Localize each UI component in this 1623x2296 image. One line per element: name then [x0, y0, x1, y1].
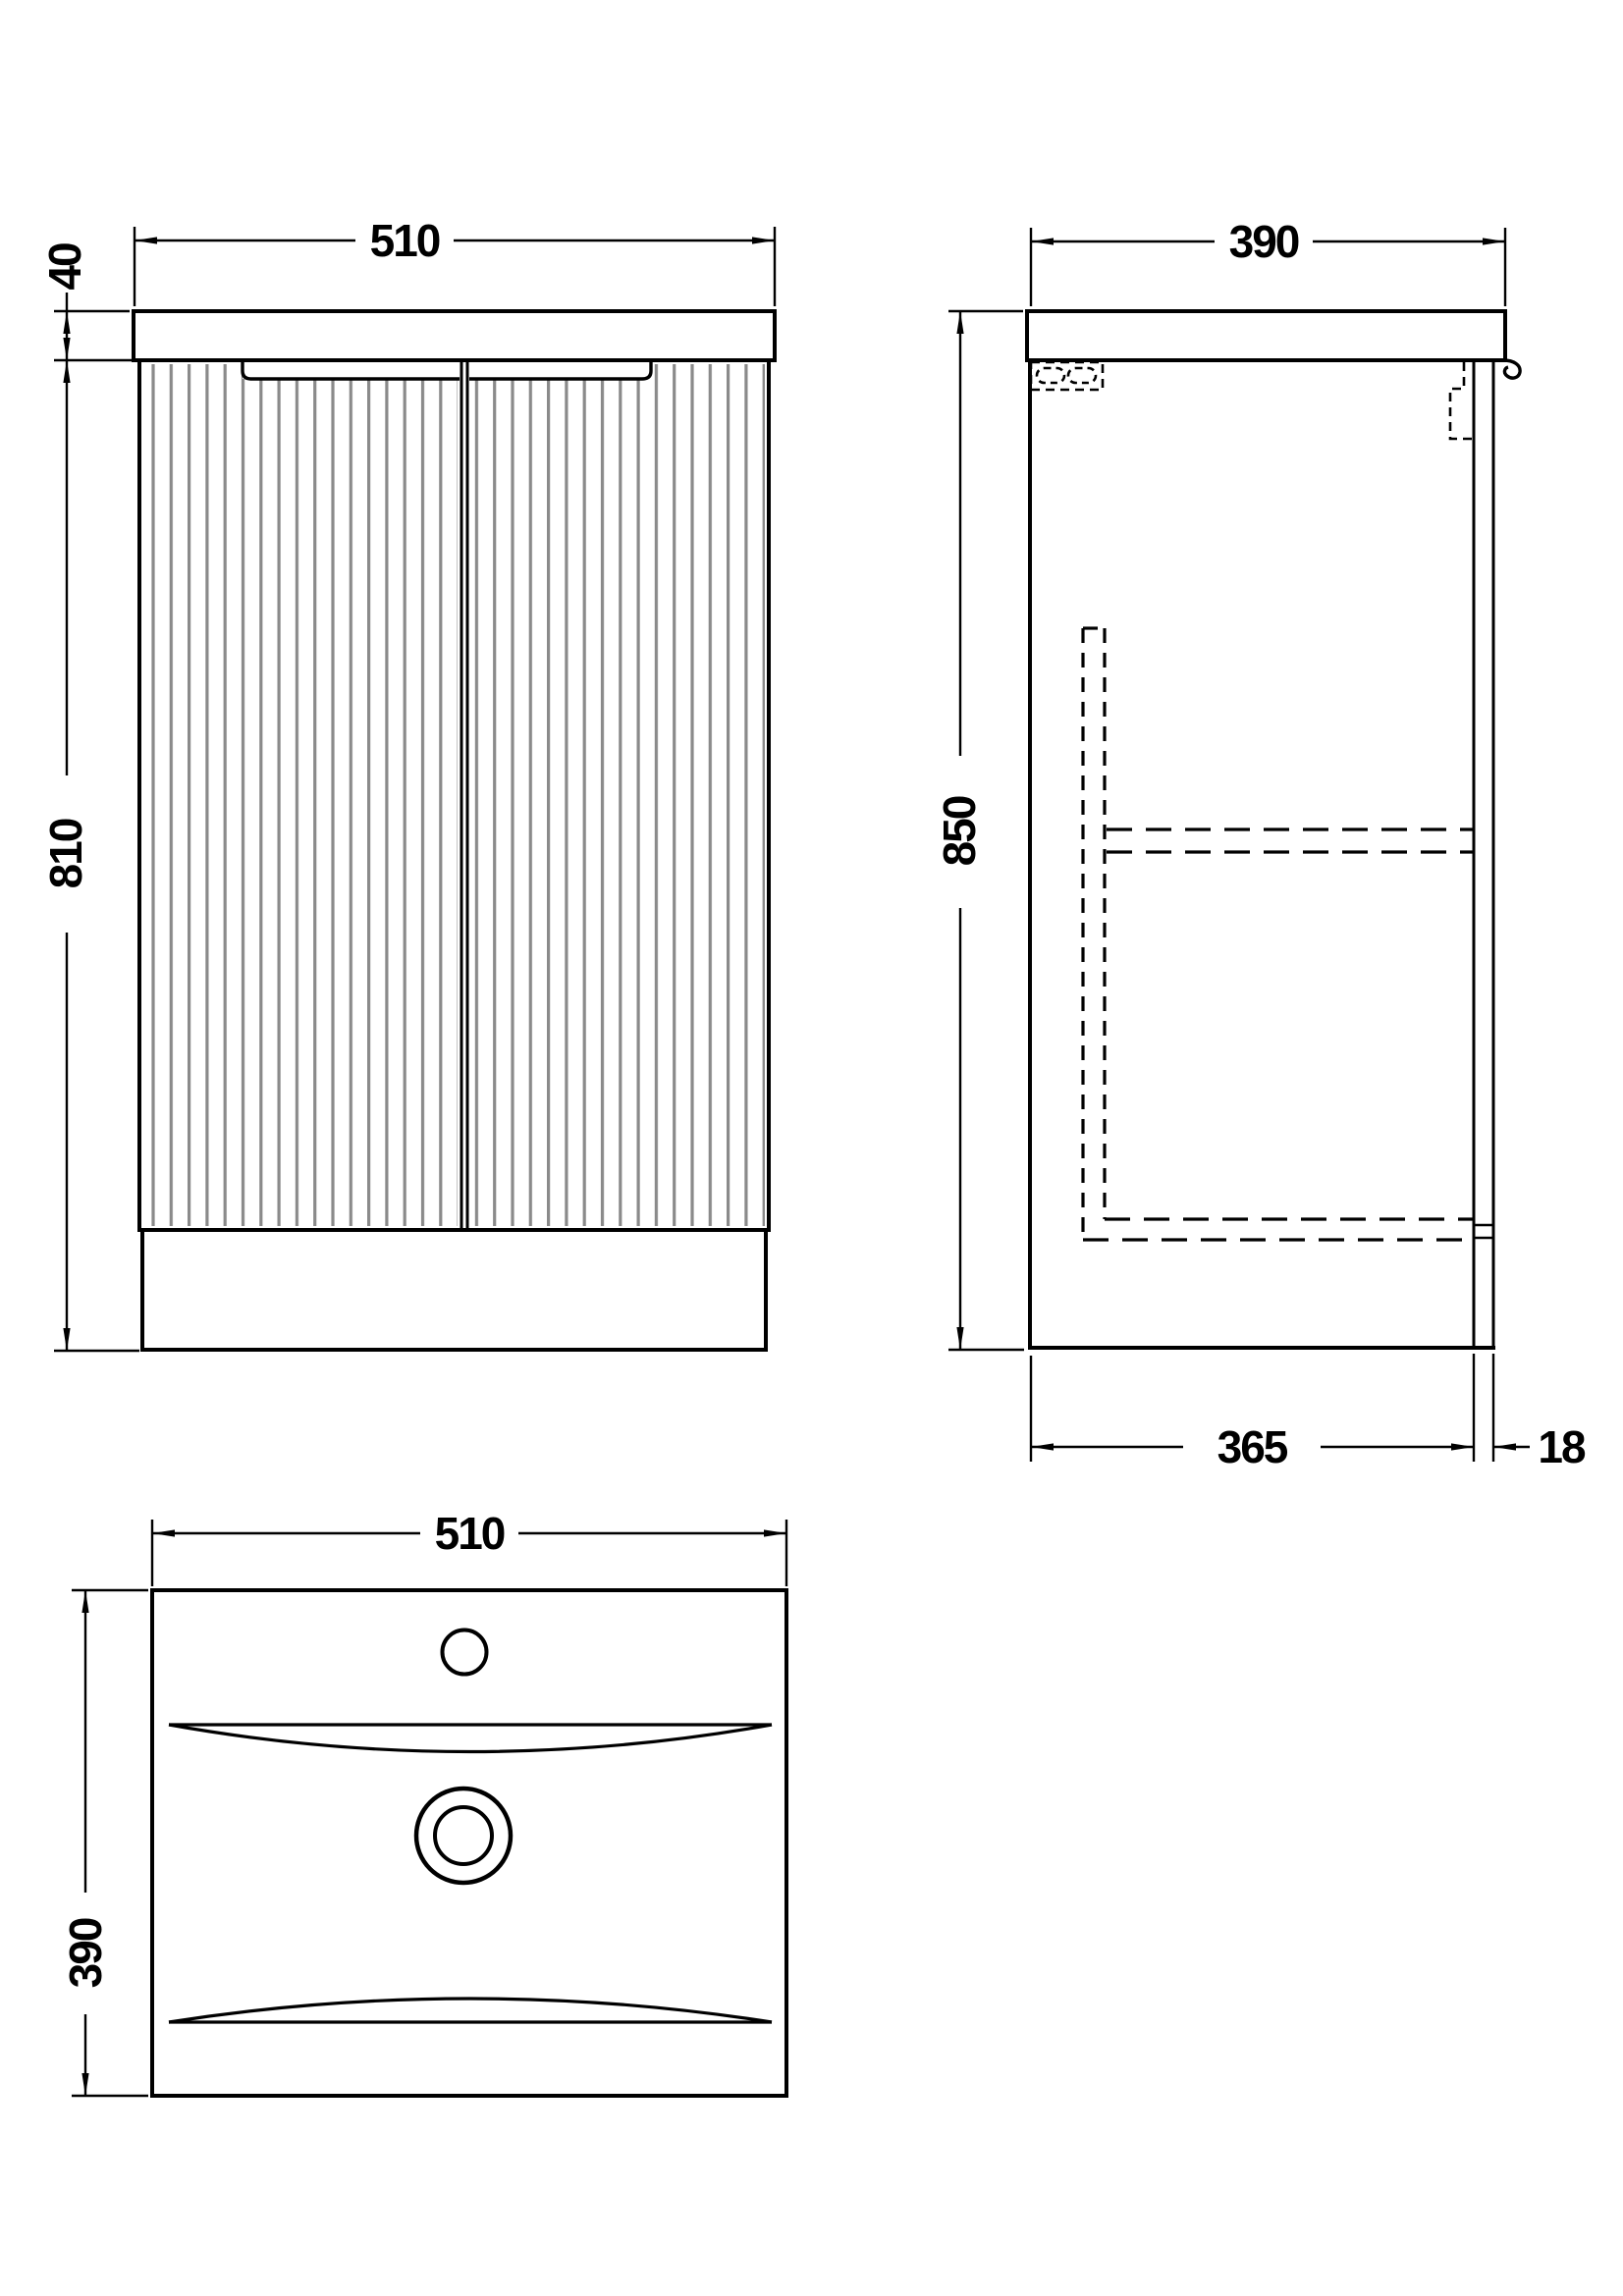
basin-front-edge	[169, 1725, 772, 1752]
front-width-label: 510	[370, 215, 440, 266]
side-back-panel-label: 18	[1538, 1421, 1586, 1472]
basin-lip-profile	[1503, 360, 1520, 378]
side-height-dimension: 850	[934, 311, 1024, 1350]
side-height-label: 850	[934, 796, 985, 866]
right-door-fluting	[470, 364, 765, 1226]
front-cabinet-height-label: 810	[40, 819, 91, 888]
wall-bracket-detail	[1450, 362, 1474, 439]
right-door-handle-recess	[469, 362, 651, 379]
plan-depth-label: 390	[60, 1918, 111, 1988]
drawing-sheet: 510 40 810	[0, 0, 1623, 2296]
front-countertop-height-dimension: 40	[39, 243, 134, 360]
side-countertop	[1027, 311, 1505, 360]
front-cabinet-height-dimension: 810	[40, 360, 139, 1351]
plan-depth-dimension: 390	[60, 1590, 148, 2096]
basin-outline	[152, 1590, 786, 2096]
hinge-arm-right	[1068, 368, 1096, 383]
side-depth-label: 390	[1229, 216, 1299, 267]
side-internal-depth-label: 365	[1217, 1421, 1288, 1472]
front-plinth	[142, 1230, 766, 1350]
left-door-fluting	[143, 364, 458, 1226]
shelf-hidden-line	[1107, 829, 1474, 852]
side-view: 390 850 365 18	[934, 216, 1586, 1472]
hinge-arm-left	[1037, 368, 1064, 383]
basin-back-edge	[169, 1999, 772, 2022]
plan-view: 510 390	[60, 1508, 786, 2096]
drain-outer	[416, 1789, 511, 1883]
door-hidden-line	[1083, 628, 1105, 1240]
side-depth-dimension: 390	[1031, 216, 1505, 306]
left-door-handle-recess	[243, 362, 460, 379]
side-bottom-dimensions: 365 18	[1031, 1354, 1586, 1472]
front-view: 510 40 810	[39, 215, 775, 1351]
front-countertop-height-label: 40	[39, 243, 90, 291]
plan-width-dimension: 510	[152, 1508, 786, 1586]
plan-width-label: 510	[435, 1508, 505, 1559]
tap-hole	[443, 1630, 487, 1675]
drain-inner	[435, 1807, 492, 1864]
front-width-dimension: 510	[135, 215, 775, 306]
vanity-technical-drawing: 510 40 810	[0, 0, 1623, 2296]
hinge-detail	[1031, 362, 1103, 390]
bottom-panel-hidden-line	[1083, 1219, 1493, 1240]
front-countertop	[134, 311, 775, 360]
